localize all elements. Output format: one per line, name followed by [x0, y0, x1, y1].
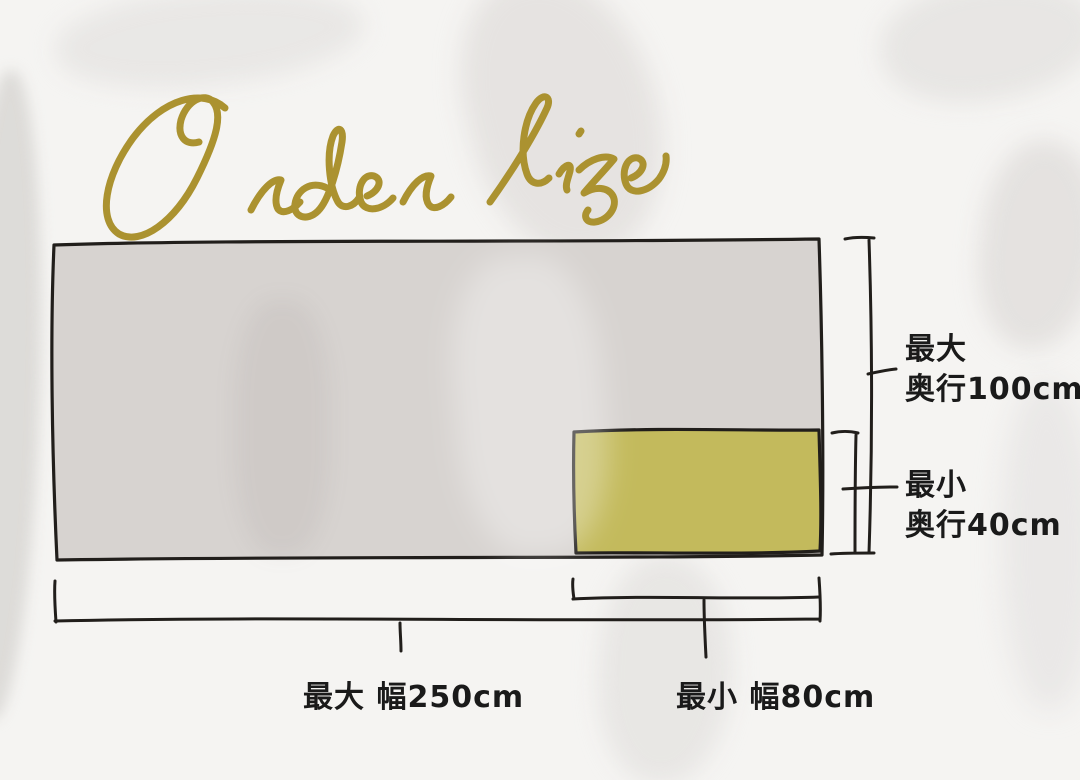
depth-max-label-line2: 奥行100cm	[905, 370, 1080, 410]
script-strokes	[106, 97, 666, 237]
depth-min-label: 最小 奥行40cm	[905, 466, 1062, 546]
depth-max-label: 最大 奥行100cm	[905, 330, 1080, 410]
order-size-diagram: Order size 最大 奥行100cm 最小 奥行40cm 最大 幅250c…	[0, 0, 1080, 780]
depth-min-tick	[843, 487, 897, 489]
width-min-bracket	[573, 579, 819, 599]
width-min-tick	[704, 600, 706, 657]
width-max-label: 最大 幅250cm	[303, 672, 524, 716]
depth-max-label-line1: 最大	[905, 330, 1080, 370]
width-max-tick	[400, 623, 401, 651]
handwritten-title-order-size	[75, 70, 675, 260]
depth-min-bracket	[832, 432, 858, 553]
width-min-label: 最小 幅80cm	[676, 672, 875, 716]
min-size-rect	[574, 429, 821, 553]
depth-min-label-line1: 最小	[905, 466, 1062, 506]
depth-min-label-line2: 奥行40cm	[905, 506, 1062, 546]
depth-max-bracket	[831, 237, 874, 554]
